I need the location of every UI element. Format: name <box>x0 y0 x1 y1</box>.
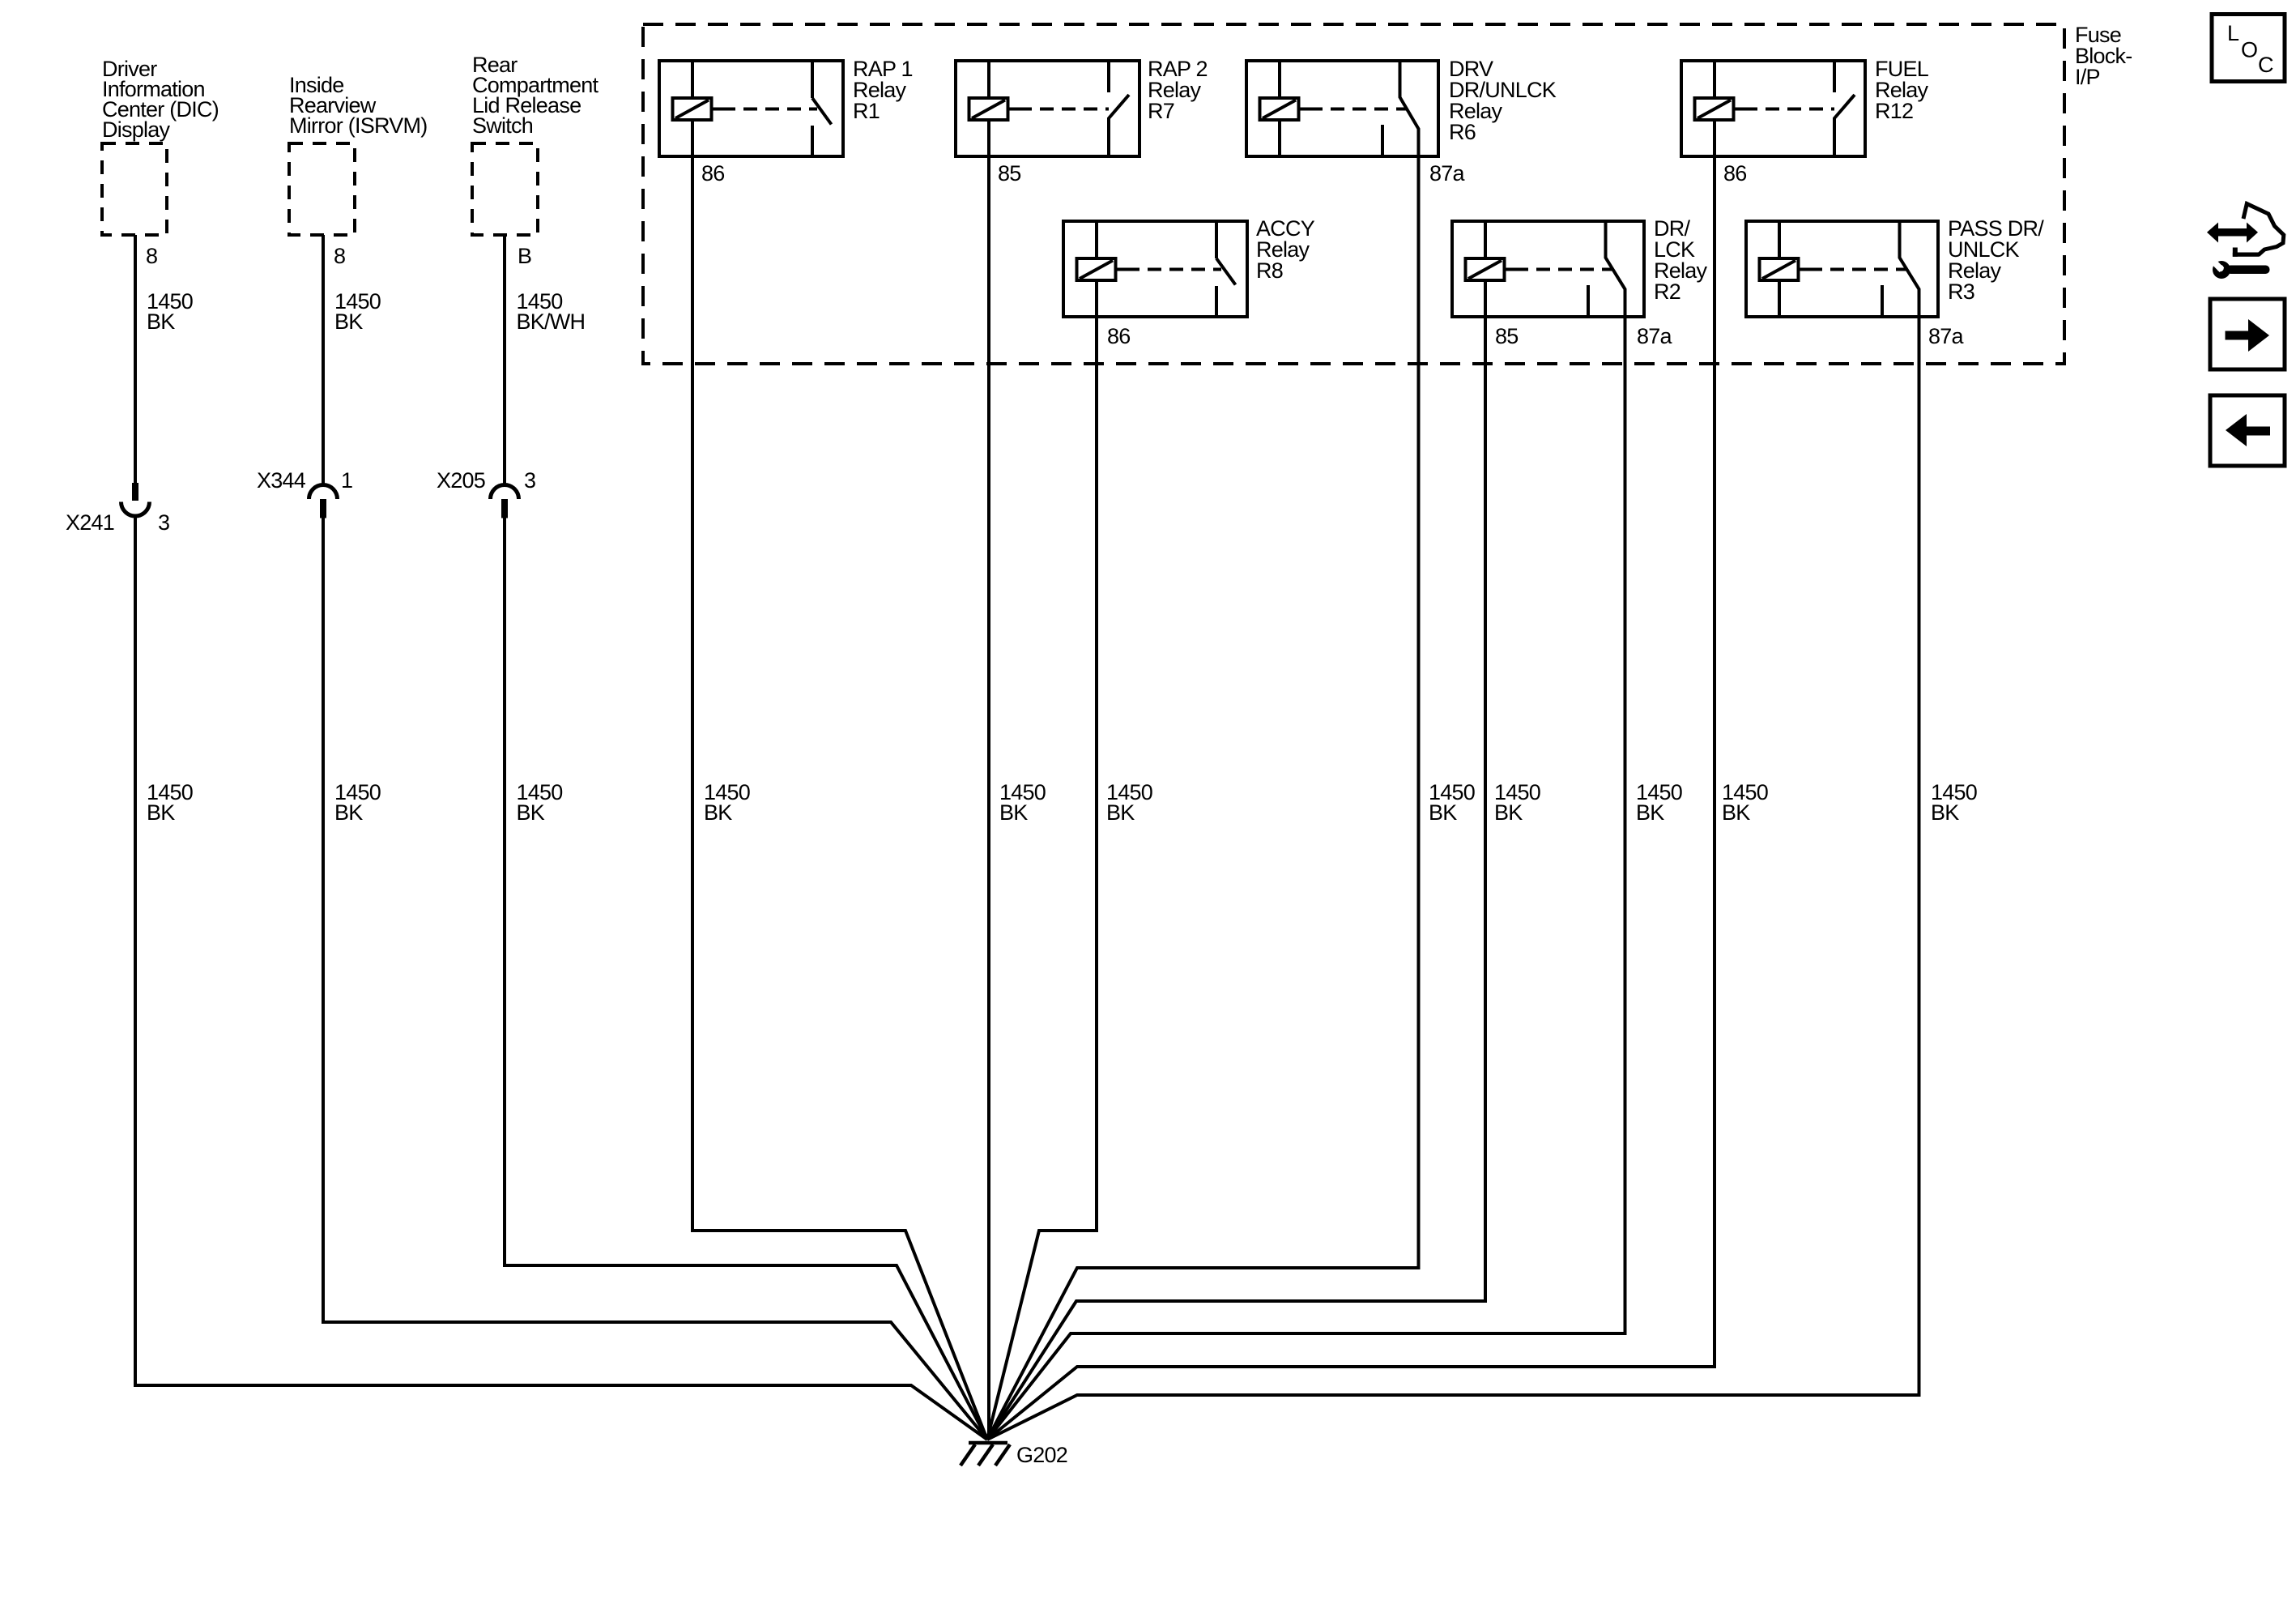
svg-text:BK: BK <box>1106 800 1135 825</box>
svg-text:I/P: I/P <box>2075 65 2100 89</box>
svg-text:R3: R3 <box>1948 279 1974 304</box>
svg-text:Switch: Switch <box>472 113 533 138</box>
svg-text:R8: R8 <box>1256 258 1283 283</box>
svg-text:O: O <box>2241 38 2257 62</box>
svg-text:87a: 87a <box>1928 324 1965 348</box>
svg-text:X344: X344 <box>257 468 306 493</box>
svg-text:BK: BK <box>334 309 363 334</box>
svg-text:BK/WH: BK/WH <box>517 309 586 334</box>
svg-text:B: B <box>518 244 531 268</box>
svg-text:BK: BK <box>1636 800 1664 825</box>
svg-text:Mirror (ISRVM): Mirror (ISRVM) <box>289 113 427 138</box>
svg-text:BK: BK <box>517 800 545 825</box>
svg-text:3: 3 <box>158 510 169 535</box>
svg-text:R2: R2 <box>1654 279 1680 304</box>
svg-text:86: 86 <box>1723 161 1747 186</box>
svg-text:BK: BK <box>147 800 175 825</box>
svg-text:X205: X205 <box>437 468 485 493</box>
svg-text:C: C <box>2258 53 2273 77</box>
svg-text:BK: BK <box>999 800 1028 825</box>
svg-text:8: 8 <box>334 244 345 268</box>
svg-text:BK: BK <box>1429 800 1457 825</box>
svg-text:3: 3 <box>524 468 535 493</box>
svg-text:BK: BK <box>147 309 175 334</box>
svg-text:BK: BK <box>1931 800 1959 825</box>
svg-text:BK: BK <box>704 800 732 825</box>
svg-text:BK: BK <box>1494 800 1523 825</box>
svg-text:86: 86 <box>1107 324 1131 348</box>
svg-text:R7: R7 <box>1148 99 1174 123</box>
svg-text:8: 8 <box>146 244 157 268</box>
svg-text:G202: G202 <box>1016 1443 1067 1467</box>
svg-text:BK: BK <box>334 800 363 825</box>
svg-text:BK: BK <box>1722 800 1750 825</box>
svg-text:L: L <box>2227 21 2239 45</box>
svg-text:85: 85 <box>1495 324 1519 348</box>
svg-text:R1: R1 <box>853 99 880 123</box>
svg-text:X241: X241 <box>66 510 114 535</box>
svg-text:87a: 87a <box>1637 324 1673 348</box>
svg-text:85: 85 <box>998 161 1021 186</box>
svg-text:Display: Display <box>102 117 171 142</box>
svg-text:1: 1 <box>341 468 352 493</box>
svg-text:87a: 87a <box>1429 161 1466 186</box>
svg-text:R12: R12 <box>1875 99 1913 123</box>
svg-text:86: 86 <box>701 161 725 186</box>
svg-text:R6: R6 <box>1449 120 1476 144</box>
